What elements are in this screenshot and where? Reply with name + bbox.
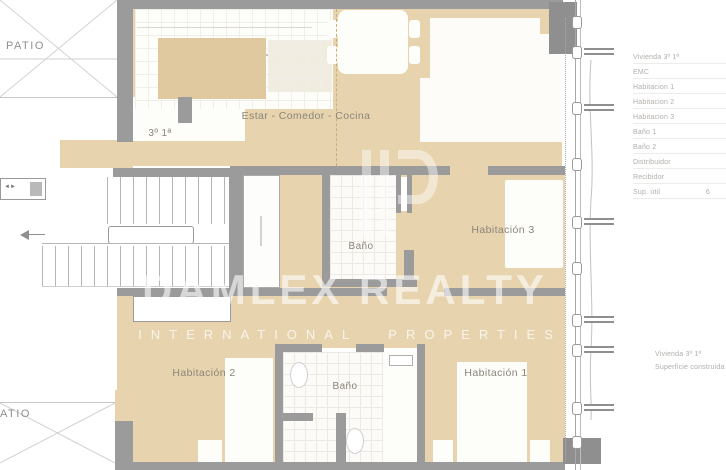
legend-label: Vivienda 3º 1ª (633, 54, 679, 61)
dining-chair (409, 20, 420, 38)
wall-stairs-top (113, 168, 243, 177)
elevator-door-arrows-icon: ◄► (4, 184, 16, 190)
footnote-line2: Superficie construida (655, 361, 726, 374)
patio-bottom-label: PATIO (0, 408, 31, 420)
balcony-railing (570, 0, 620, 470)
railing-post (572, 314, 582, 327)
unit-label: 3º 1ª (138, 128, 182, 139)
railing-post (572, 102, 582, 115)
dining-table (338, 10, 408, 74)
bedroom2-label: Habitación 2 (148, 367, 260, 379)
wall-mid-upper-right (488, 166, 565, 175)
railing-post (572, 216, 582, 229)
bedroom1-nightstand (530, 440, 550, 462)
railing-tick (584, 104, 614, 111)
stairs-upper-flight (107, 177, 229, 224)
damlex-logo-watermark (356, 150, 444, 236)
living-label: Estar - Comedor - Cocina (216, 110, 396, 122)
floor-patch-left (115, 390, 133, 421)
wall-bath-bottom-inner-v (336, 413, 346, 462)
elevator-cab (30, 182, 42, 196)
legend-label: Habitacion 3 (633, 114, 674, 121)
wall-entry-stub (178, 97, 192, 123)
stairwell-upper-left (42, 177, 107, 224)
legend-row: Baño 1 (633, 124, 726, 139)
bath-bottom-label: Baño (320, 381, 370, 392)
railing-post (572, 344, 582, 357)
legend-value: 6 (706, 189, 710, 196)
closet-mark (260, 216, 262, 246)
watermark-brand: DAMLEX REALTY (75, 266, 615, 314)
wardrobe-top-box (389, 355, 413, 366)
legend-label: Habitacion 2 (633, 99, 674, 106)
patio-top: PATIO (0, 0, 117, 98)
dining-chair (409, 46, 420, 64)
wall-bath-bottom-left (275, 348, 283, 462)
legend-label: Baño 1 (633, 129, 656, 136)
railing-tick (584, 404, 614, 411)
railing-post (572, 158, 582, 171)
bathroom-bottom-sink (346, 428, 364, 454)
logo-bar (362, 150, 371, 236)
bedroom1-nightstand (433, 440, 453, 462)
railing-post (572, 46, 582, 59)
railing-line (580, 0, 581, 470)
bedroom2-nightstand (198, 440, 222, 462)
patio-top-label: PATIO (6, 40, 45, 52)
logo-arc (398, 150, 438, 204)
wall-bedroom1-left (417, 344, 425, 462)
legend-label: Baño 2 (633, 144, 656, 151)
patio-bottom: PATIO (0, 402, 115, 463)
stairs-divider-line (42, 243, 230, 244)
watermark-tagline: INTERNATIONAL PROPERTIES (110, 327, 590, 342)
legend-row: Baño 2 (633, 139, 726, 154)
floorplan-canvas: PATIO PATIO ◄► (0, 0, 726, 470)
logo-bar (380, 150, 389, 236)
railing-wave-icon (585, 60, 597, 420)
wall-top (130, 0, 563, 9)
legend-row: Sup. útil 6 (633, 184, 726, 199)
bedroom1-label: Habitación 1 (437, 367, 555, 379)
legend-row: Habitacion 3 (633, 109, 726, 124)
legend-row: Habitacion 1 (633, 79, 726, 94)
railing-line (575, 0, 576, 470)
facade-dotted-line (565, 18, 566, 462)
wall-bath-bottom-inner-h (283, 413, 313, 421)
stairs-arrow-tail (29, 234, 45, 235)
railing-tick (584, 48, 614, 55)
legend-label: EMC (633, 69, 649, 76)
stairs-landing (108, 226, 194, 244)
wall-bottom (115, 462, 565, 470)
kitchen-rug (268, 40, 332, 92)
legend-row: EMC (633, 64, 726, 79)
kitchen-counter-line (137, 27, 312, 28)
legend-label: Sup. útil (633, 189, 660, 196)
section-dash-line (336, 9, 337, 166)
entry-floor-patch (60, 140, 133, 168)
wardrobe-column (383, 352, 417, 462)
wall-bath-bottom-top-b (356, 344, 384, 352)
legend-label: Recibidor (633, 174, 664, 181)
railing-post (572, 16, 582, 29)
bath-main-label: Baño (336, 241, 386, 252)
kitchen-island (158, 38, 266, 99)
footnote-line1: Vivienda 3º 1ª (655, 348, 726, 361)
legend-row: Habitacion 2 (633, 94, 726, 109)
railing-tick (584, 346, 614, 353)
wall-patio-right (117, 0, 133, 142)
legend: Vivienda 3º 1ª EMC Habitacion 1 Habitaci… (633, 49, 726, 199)
footnote: Vivienda 3º 1ª Superficie construida (655, 348, 726, 374)
terrace-floor-patch (420, 18, 430, 78)
bathroom-bottom-toilet (290, 362, 308, 388)
legend-label: Distribuidor (633, 159, 671, 166)
stairs-direction-arrow-icon (20, 230, 29, 240)
railing-post (572, 436, 582, 449)
legend-label: Habitacion 1 (633, 84, 674, 91)
railing-tick (584, 316, 614, 323)
legend-row: Vivienda 3º 1ª (633, 49, 726, 64)
elevator: ◄► (0, 178, 46, 200)
railing-tick (584, 218, 614, 225)
wall-bath-bottom-top-a (275, 344, 322, 352)
railing-post (572, 402, 582, 415)
wall-bottom-left (115, 421, 133, 462)
legend-row: Recibidor (633, 169, 726, 184)
bedroom3-label: Habitación 3 (455, 224, 551, 236)
legend-row: Distribuidor (633, 154, 726, 169)
